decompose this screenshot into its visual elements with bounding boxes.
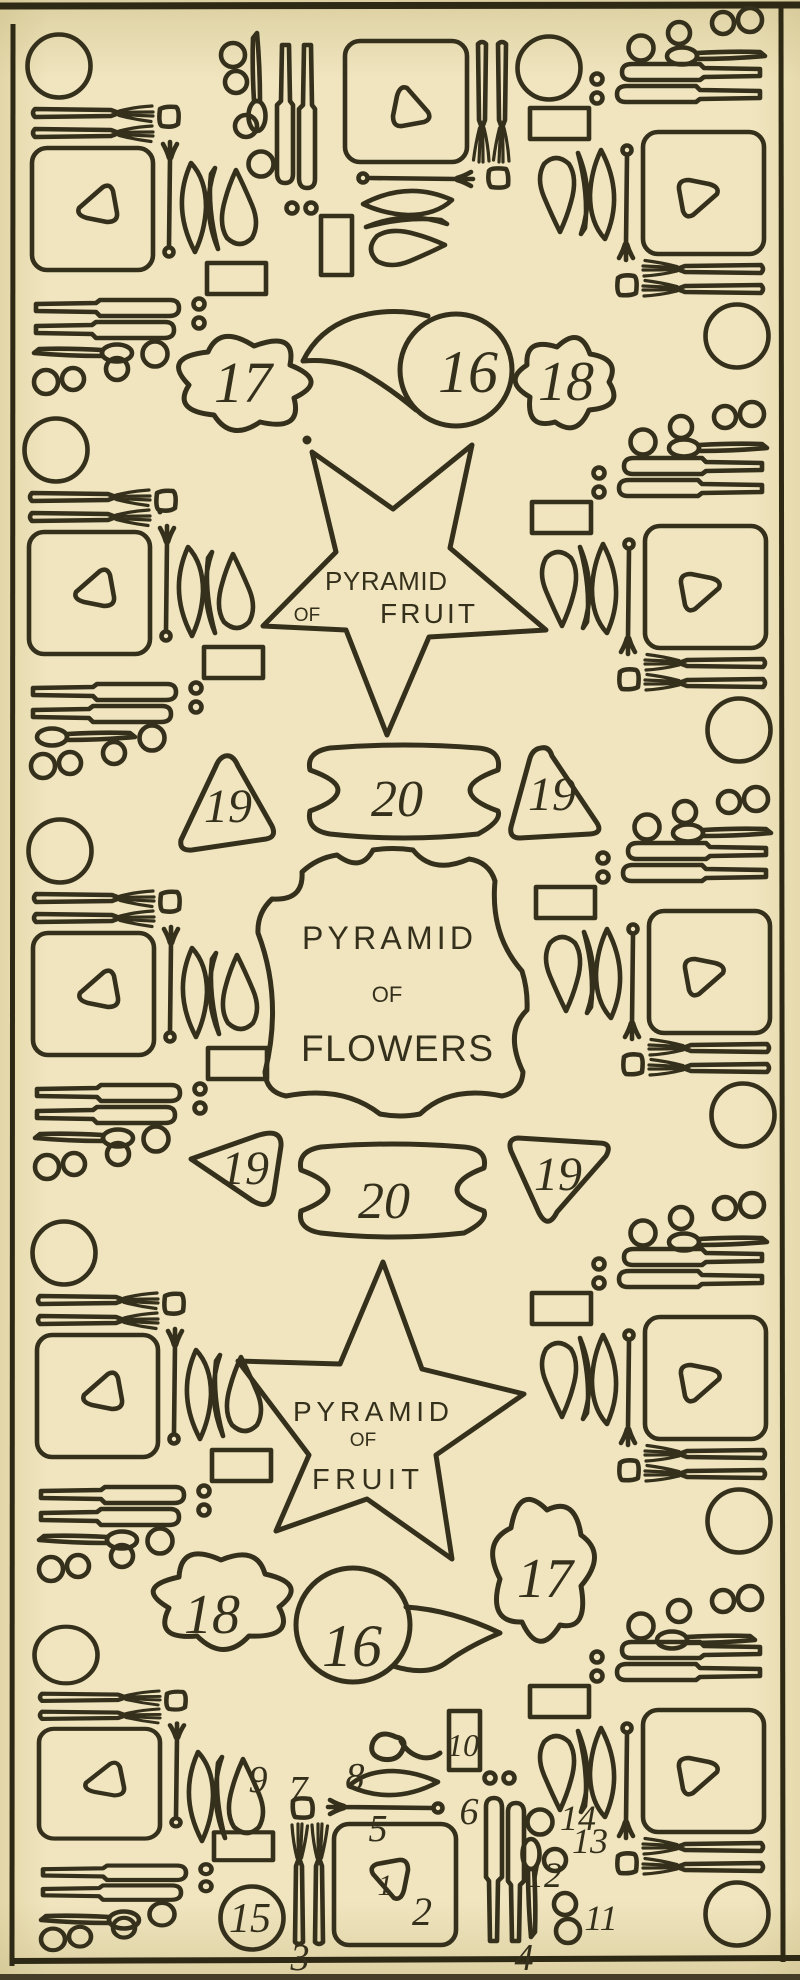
svg-text:11: 11 bbox=[584, 1898, 617, 1938]
svg-text:7: 7 bbox=[289, 1769, 310, 1811]
svg-text:19: 19 bbox=[528, 768, 576, 821]
svg-text:19: 19 bbox=[221, 1142, 269, 1195]
svg-text:14: 14 bbox=[560, 1798, 596, 1838]
svg-text:16: 16 bbox=[322, 1613, 382, 1679]
svg-text:PYRAMID: PYRAMID bbox=[302, 920, 476, 956]
svg-text:OF: OF bbox=[372, 982, 403, 1007]
svg-text:17: 17 bbox=[214, 350, 274, 415]
svg-text:16: 16 bbox=[438, 339, 498, 405]
svg-text:20: 20 bbox=[358, 1173, 410, 1230]
svg-text:3: 3 bbox=[290, 1937, 310, 1979]
svg-text:6: 6 bbox=[460, 1791, 479, 1833]
svg-text:15: 15 bbox=[229, 1896, 271, 1942]
svg-text:FRUIT: FRUIT bbox=[312, 1464, 422, 1496]
svg-text:2: 2 bbox=[412, 1889, 432, 1934]
svg-text:8: 8 bbox=[346, 1756, 365, 1798]
svg-text:18: 18 bbox=[538, 351, 594, 413]
svg-text:9: 9 bbox=[249, 1759, 268, 1801]
svg-text:5: 5 bbox=[369, 1808, 388, 1850]
svg-text:12: 12 bbox=[526, 1855, 562, 1895]
svg-text:PYRAMID: PYRAMID bbox=[325, 566, 449, 596]
svg-text:19: 19 bbox=[204, 780, 252, 833]
svg-text:18: 18 bbox=[184, 1584, 240, 1646]
svg-text:20: 20 bbox=[371, 771, 423, 828]
svg-text:4: 4 bbox=[515, 1937, 534, 1979]
svg-text:FLOWERS: FLOWERS bbox=[301, 1028, 497, 1069]
svg-text:FRUIT: FRUIT bbox=[380, 598, 478, 629]
svg-text:19: 19 bbox=[534, 1148, 582, 1201]
svg-text:OF: OF bbox=[350, 1430, 376, 1451]
svg-text:10: 10 bbox=[447, 1727, 479, 1763]
svg-text:17: 17 bbox=[517, 1548, 575, 1610]
svg-text:1: 1 bbox=[378, 1869, 393, 1902]
svg-text:OF: OF bbox=[294, 605, 320, 626]
